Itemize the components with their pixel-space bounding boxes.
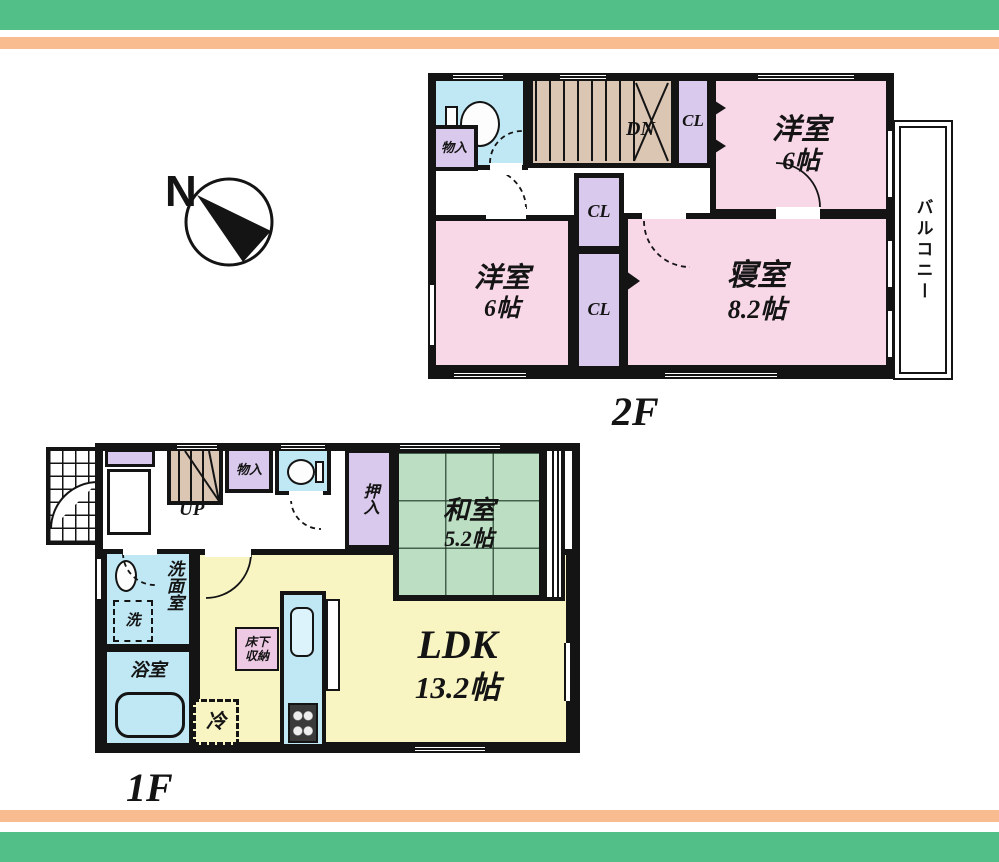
floor1-label: 1F bbox=[126, 764, 173, 811]
door-opening-western-b bbox=[486, 207, 526, 219]
floor1-linework bbox=[95, 443, 580, 753]
window-2f-left-western-b bbox=[428, 285, 436, 345]
bottom-orange-stripe bbox=[0, 810, 999, 822]
window-1f-right-ldk bbox=[564, 643, 572, 701]
window-2f-bottom-western-b bbox=[454, 371, 526, 379]
window-2f-top-toilet bbox=[453, 73, 503, 81]
window-1f-top-stairs bbox=[177, 443, 217, 451]
bottom-green-stripe bbox=[0, 832, 999, 862]
window-2f-right-bedroom-2 bbox=[886, 311, 894, 357]
door-opening-toilet-2f bbox=[490, 163, 522, 175]
floor1-plan: UP 物入 押入 LDK 13.2帖 和室 5.2帖 洗面室 洗 bbox=[95, 443, 580, 753]
floor2-plan: DN CL 物入 洋室 6帖 洋室 6帖 CL CL 寝室 8.2帖 bbox=[428, 73, 894, 379]
top-green-stripe bbox=[0, 0, 999, 30]
door-opening-toilet-1f bbox=[289, 491, 323, 501]
door-opening-ldk bbox=[205, 545, 251, 557]
window-2f-bottom-bedroom bbox=[665, 371, 777, 379]
window-2f-right-western-a bbox=[886, 131, 894, 197]
window-2f-right-bedroom-1 bbox=[886, 241, 894, 287]
balcony-label: バルコニー bbox=[911, 198, 936, 303]
window-2f-top-western-a bbox=[758, 73, 854, 81]
compass-icon: N bbox=[155, 158, 285, 280]
window-1f-left-washroom bbox=[95, 559, 103, 599]
top-orange-stripe bbox=[0, 37, 999, 49]
floor2-label: 2F bbox=[612, 388, 659, 435]
balcony: バルコニー bbox=[893, 120, 953, 380]
door-opening-washroom bbox=[123, 543, 157, 555]
door-opening-western-a bbox=[776, 207, 820, 219]
compass-north-label: N bbox=[165, 167, 197, 216]
window-2f-top-stairs bbox=[560, 73, 606, 81]
window-1f-top-japanese bbox=[400, 443, 500, 451]
floor2-linework bbox=[428, 73, 894, 379]
door-opening-bedroom bbox=[642, 207, 686, 219]
balcony-inner-rail: バルコニー bbox=[899, 126, 947, 374]
floorplan-page: N DN CL 物入 洋室 6帖 洋室 6帖 CL CL 寝室 bbox=[0, 0, 999, 862]
window-1f-bottom-ldk bbox=[415, 745, 485, 753]
window-1f-top-toilet bbox=[281, 443, 325, 451]
